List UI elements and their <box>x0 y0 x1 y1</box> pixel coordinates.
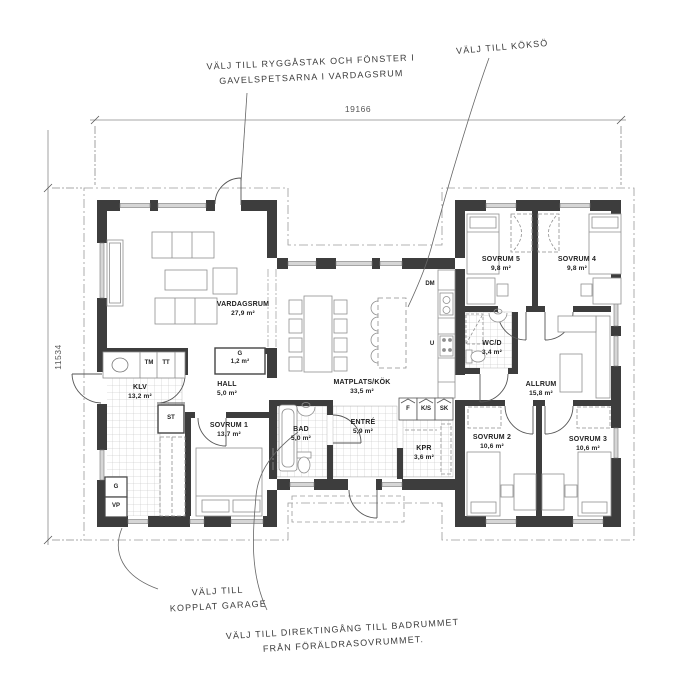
wardrobe <box>160 437 185 516</box>
sovrum2-door <box>505 406 533 434</box>
room-label-sovrum4: SOVRUM 49,8 m² <box>558 255 596 273</box>
annotation-garage: VÄLJ TILL KOPPLAT GARAGE <box>162 581 273 617</box>
fixture-label-sk: SK <box>440 406 448 412</box>
sofa <box>155 298 217 324</box>
room-label-sovrum5: SOVRUM 59,8 m² <box>482 255 520 273</box>
room-label-garderob: G1,2 m² <box>231 351 250 366</box>
room-label-sovrum3: SOVRUM 310,6 m² <box>569 435 607 453</box>
wardrobe <box>468 407 501 428</box>
wcd-door <box>480 374 508 402</box>
entry-door <box>349 490 377 518</box>
room-label-bad: BAD5,0 m² <box>291 425 311 443</box>
dimension-width: 19166 <box>338 104 378 114</box>
corner-sofa <box>596 316 610 398</box>
toilet <box>298 457 310 473</box>
garage-leader <box>118 528 158 589</box>
wardrobe <box>577 407 610 428</box>
fixture-label-dm: DM <box>425 281 434 287</box>
wardrobe <box>511 214 532 252</box>
room-label-sovrum1: SOVRUM 113,7 m² <box>210 421 248 439</box>
sovrum3-door <box>545 406 573 434</box>
coffee-table <box>165 270 207 290</box>
fixture-label-vp: VP <box>112 503 120 509</box>
room-label-kpr: KPR3,6 m² <box>414 444 434 462</box>
room-label-sovrum2: SOVRUM 210,6 m² <box>473 433 511 451</box>
fixture-label-st: ST <box>167 415 175 421</box>
dimension-height: 11534 <box>53 335 63 379</box>
room-label-matplats-kok: MATPLATS/KÖK33,5 m² <box>334 378 391 396</box>
desk <box>542 474 564 510</box>
coffee-table <box>560 354 582 392</box>
fixture-label-tm: TM <box>145 360 154 366</box>
fixture-label-g: G <box>114 484 119 490</box>
corner-sofa <box>558 316 596 332</box>
fixture-label-ks: K/S <box>421 406 431 412</box>
dining-table <box>304 296 332 372</box>
room-label-hall: HALL5,0 m² <box>217 380 237 398</box>
floor-plan-canvas: VÄLJ TILL RYGGÅSTAK OCH FÖNSTER I GAVELS… <box>0 0 700 700</box>
ridge-leader <box>241 93 247 183</box>
room-label-klv: KLV13,2 m² <box>128 383 152 401</box>
armchair <box>213 268 237 294</box>
room-label-allrum: ALLRUM15,8 m² <box>526 380 557 398</box>
room-label-vardagsrum: VARDAGSRUM27,9 m² <box>217 300 269 318</box>
wardrobe <box>538 214 559 252</box>
room-label-wcd: WC/D3,4 m² <box>482 339 502 357</box>
room-label-entre: ENTRÉ5,9 m² <box>351 418 376 436</box>
fixture-label-tt: TT <box>162 360 169 366</box>
desk <box>593 278 621 304</box>
fixture-label-u: U <box>430 341 434 347</box>
entrance-porch-outline <box>292 496 404 522</box>
desk <box>514 474 536 510</box>
sofa <box>152 232 214 258</box>
fixture-label-f: F <box>406 406 410 412</box>
desk <box>467 278 495 304</box>
kitchen-island-option <box>378 298 406 368</box>
